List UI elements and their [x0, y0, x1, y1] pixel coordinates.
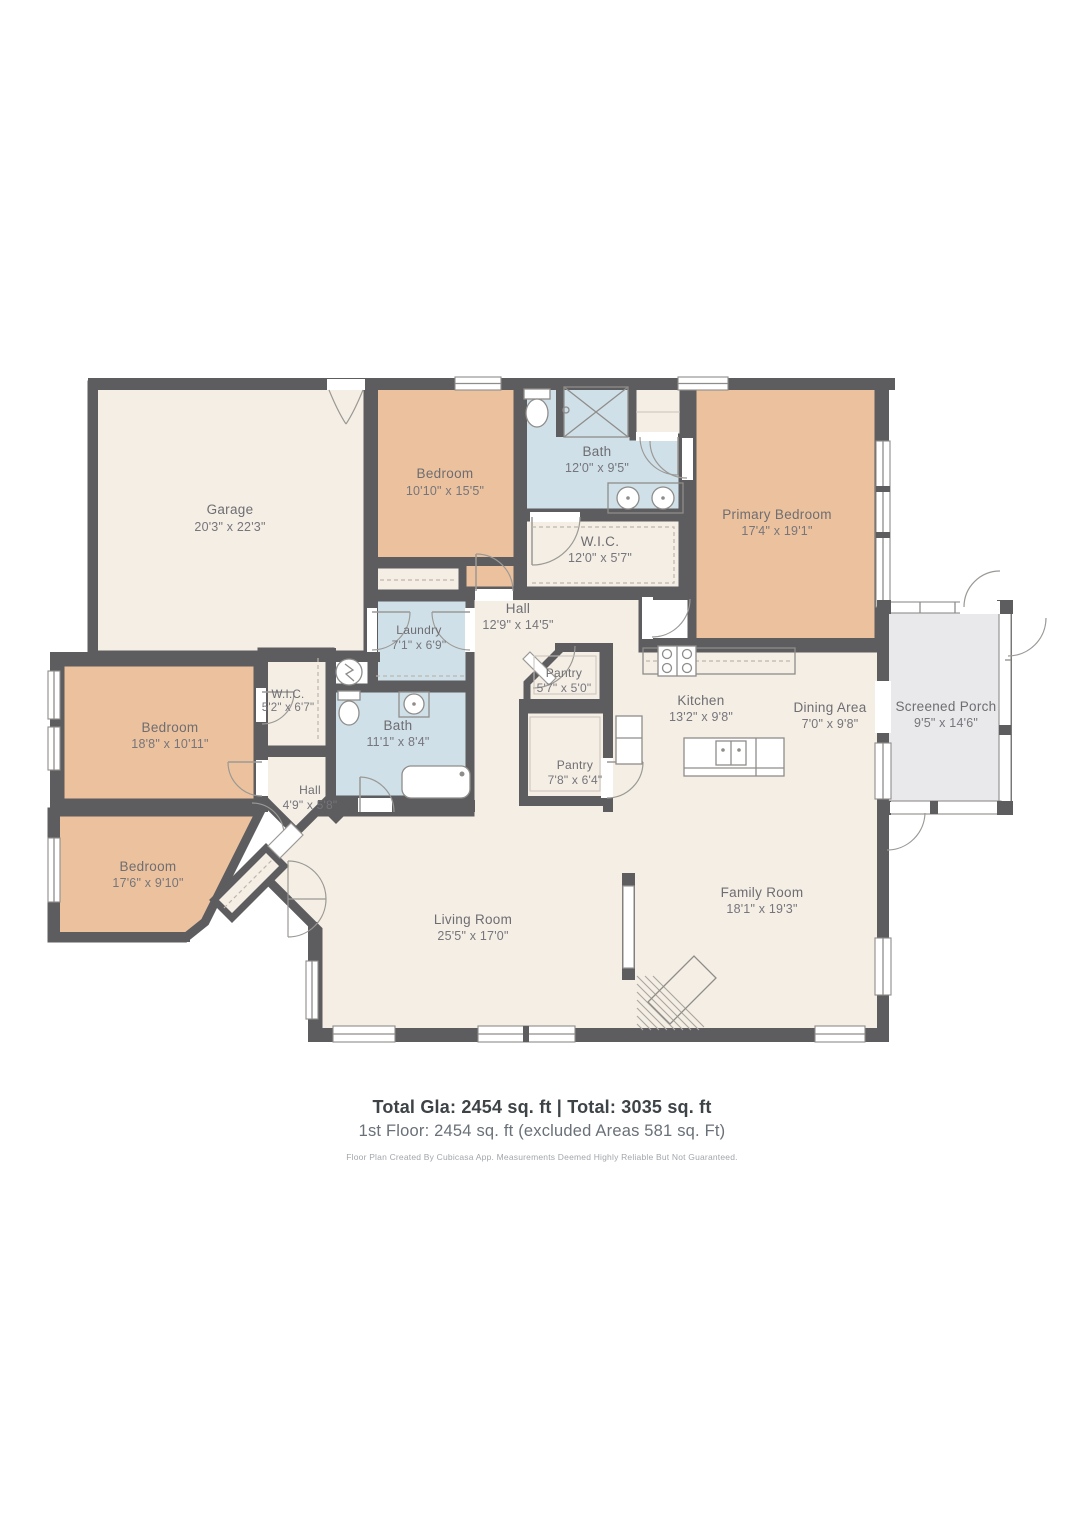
- room-label: Bedroom: [120, 859, 177, 874]
- room-dims: 11'1" x 8'4": [366, 735, 429, 749]
- room-label: Pantry: [557, 758, 593, 772]
- stove-icon: [658, 646, 696, 676]
- room-dims: 20'3" x 22'3": [194, 520, 265, 534]
- room-dims: 4'9" x 5'8": [283, 798, 338, 812]
- garage-entry-opening: [327, 379, 365, 390]
- toilet-icon: [338, 691, 360, 725]
- room-label: Screened Porch: [895, 699, 996, 714]
- window: [48, 727, 60, 770]
- footer-first-floor: 1st Floor: 2454 sq. ft (excluded Areas 5…: [359, 1122, 726, 1140]
- room-dims: 9'5" x 14'6": [914, 716, 978, 730]
- room-label: Pantry: [546, 666, 582, 680]
- room-dims: 5'7" x 5'0": [537, 681, 592, 695]
- room-dims: 18'8" x 10'11": [131, 737, 208, 751]
- door-arc: [652, 599, 690, 637]
- room-dims: 12'9" x 14'5": [482, 618, 553, 632]
- room-wic-left: [262, 652, 330, 750]
- sliding-door-living-family: [623, 886, 634, 968]
- room-dims: 7'0" x 9'8": [802, 717, 859, 731]
- room-label: W.I.C.: [581, 534, 620, 549]
- floor-plan-canvas: Garage 20'3" x 22'3" Bedroom 10'10" x 15…: [0, 0, 1085, 1536]
- window: [48, 671, 60, 719]
- room-dims: 5'2" x 6'7": [262, 702, 314, 714]
- window: [455, 377, 501, 390]
- room-label: Hall: [506, 601, 530, 616]
- shower-stub-right: [628, 385, 636, 437]
- room-dims: 17'4" x 19'1": [741, 524, 812, 538]
- closet-bath-top: [633, 385, 683, 437]
- room-label: Hall: [299, 783, 321, 797]
- window: [333, 1026, 395, 1042]
- electrical-panel-icon: [336, 659, 362, 685]
- floor-plan-page: Garage 20'3" x 22'3" Bedroom 10'10" x 15…: [0, 0, 1085, 1536]
- room-dims: 18'1" x 19'3": [726, 902, 797, 916]
- footer-total-area: Total Gla: 2454 sq. ft | Total: 3035 sq.…: [372, 1097, 711, 1117]
- room-label: Laundry: [396, 623, 441, 637]
- window: [815, 1026, 865, 1042]
- window: [876, 441, 890, 607]
- room-label: Bedroom: [417, 466, 474, 481]
- room-dims: 7'1" x 6'9": [392, 638, 447, 652]
- room-label: Bath: [583, 444, 612, 459]
- room-dims: 13'2" x 9'8": [669, 710, 733, 724]
- footer: Total Gla: 2454 sq. ft | Total: 3035 sq.…: [346, 1097, 737, 1162]
- room-dims: 12'0" x 5'7": [568, 551, 632, 565]
- room-label: W.I.C.: [271, 689, 304, 701]
- room-label: Family Room: [721, 885, 804, 900]
- window: [875, 743, 891, 799]
- room-dims: 7'8" x 6'4": [548, 773, 603, 787]
- room-label: Primary Bedroom: [722, 507, 832, 522]
- room-dims: 10'10" x 15'5": [406, 484, 484, 498]
- window: [478, 1026, 575, 1042]
- room-label: Bedroom: [142, 720, 199, 735]
- room-label: Garage: [207, 502, 254, 517]
- porch-door-opening-top: [960, 601, 1000, 614]
- porch-door-bottom: [887, 802, 928, 850]
- footer-disclaimer: Floor Plan Created By Cubicasa App. Meas…: [346, 1152, 737, 1162]
- bathtub-icon: [402, 766, 470, 798]
- window: [306, 961, 318, 1019]
- room-label: Kitchen: [677, 693, 724, 708]
- toilet-icon: [524, 389, 550, 427]
- kitchen-island: [684, 738, 784, 776]
- room-label: Dining Area: [793, 700, 866, 715]
- room-dims: 12'0" x 9'5": [565, 461, 629, 475]
- dining-porch-opening: [875, 681, 891, 733]
- room-label: Living Room: [434, 912, 512, 927]
- room-label: Bath: [384, 718, 413, 733]
- closet-bedroom-top: [374, 565, 462, 593]
- room-dims: 25'5" x 17'0": [437, 929, 508, 943]
- window: [48, 838, 60, 902]
- fridge-icon: [616, 716, 642, 764]
- porch-door-right: [1008, 618, 1046, 656]
- room-dims: 17'6" x 9'10": [112, 876, 183, 890]
- window: [875, 938, 891, 995]
- window: [678, 377, 728, 390]
